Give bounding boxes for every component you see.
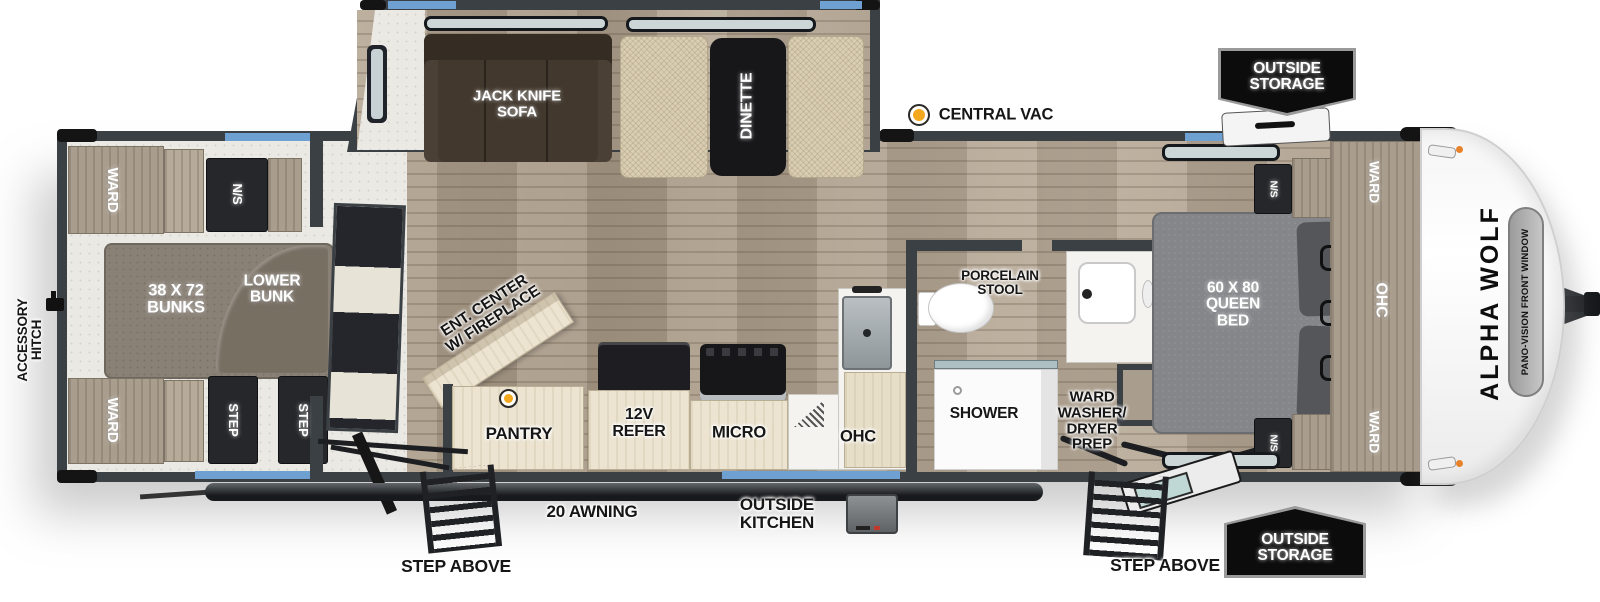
step-2-label: STEP <box>296 403 310 436</box>
sofa-window <box>424 16 608 31</box>
awning-roll <box>205 483 1043 501</box>
marker-light <box>1456 146 1463 153</box>
outside-kitchen-label: OUTSIDE KITCHEN <box>740 496 814 532</box>
ns-bed-bottom-label: N/S <box>1267 435 1278 452</box>
step-above-right-label: STEP ABOVE <box>1110 556 1220 574</box>
ward-bottom-label: WARD <box>104 397 120 442</box>
entry-steps-right <box>1083 471 1169 560</box>
ohc-kitchen-label: OHC <box>840 428 876 445</box>
outside-storage-badge-top: OUTSIDE STORAGE <box>1218 48 1356 116</box>
wall-trim <box>360 0 386 10</box>
central-vac-outlet-dot <box>499 389 518 408</box>
floorplan-canvas: WARD N/S 38 X 72 BUNKS LOWER BUNK WARD S… <box>0 0 1600 602</box>
outside-storage-badge-bottom: OUTSIDE STORAGE <box>1224 506 1366 578</box>
shower-label: SHOWER <box>950 406 1019 422</box>
dinette-bench-right <box>788 36 864 178</box>
faucet <box>852 286 882 293</box>
awning-bracket <box>140 490 210 500</box>
pantry-label: PANTRY <box>486 425 553 443</box>
lower-bunk-label: LOWER BUNK <box>244 274 301 307</box>
wardrobe-door <box>164 149 204 233</box>
awning-label: 20 AWNING <box>546 503 637 521</box>
cabinet-handle <box>1320 300 1331 326</box>
outside-storage-top-label: OUTSIDE STORAGE <box>1250 61 1325 94</box>
vanity-faucet-dot <box>1082 289 1092 299</box>
central-vac-label: CENTRAL VAC <box>939 106 1054 123</box>
accessory-hitch-pin <box>51 291 56 300</box>
bath-wall-top <box>906 240 1022 251</box>
bedside-cabinet-bottom <box>1292 414 1334 470</box>
refrigerator <box>598 342 690 394</box>
marker-light <box>1456 460 1463 467</box>
bunk-ladder <box>326 203 406 433</box>
outside-kitchen-box <box>846 494 898 534</box>
dinette-label: DINETTE <box>740 72 757 139</box>
stove-knobs <box>706 348 780 356</box>
hitch-coupler <box>1584 292 1600 316</box>
bath-wall-left <box>906 240 917 472</box>
window-strip <box>225 133 310 141</box>
shower-drain <box>953 386 962 395</box>
bunk-shelf <box>268 158 302 232</box>
jack-knife-sofa-label: JACK KNIFE SOFA <box>473 88 561 120</box>
dinette-window <box>626 17 816 32</box>
step-above-left-label: STEP ABOVE <box>401 557 511 575</box>
accessory-hitch-label: ACCESSORY HITCH <box>16 298 44 381</box>
ns-bunk-label: N/S <box>230 183 244 204</box>
cabinet-handle <box>1320 355 1331 381</box>
window-strip <box>722 471 900 479</box>
bedroom-ohc-label: OHC <box>1372 283 1389 318</box>
wall-trim <box>57 470 97 483</box>
outside-kitchen-light <box>874 526 880 530</box>
bedroom-window-top <box>1162 144 1280 161</box>
peninsula-cabinet <box>844 372 906 468</box>
step-1-label: STEP <box>226 403 240 436</box>
queen-bed-label: 60 X 80 QUEEN BED <box>1206 281 1260 330</box>
cabinet-handle <box>1320 245 1331 271</box>
kitchen-counter <box>788 394 842 470</box>
entry-steps-left <box>420 464 502 553</box>
ward-top-label: WARD <box>104 167 120 212</box>
central-vac-dot <box>908 104 930 126</box>
bunk-wall-top <box>310 141 323 227</box>
pano-vision-label: PANO-VISION FRONT WINDOW <box>1521 229 1531 376</box>
bedside-cabinet-top <box>1292 158 1334 218</box>
window-strip <box>195 471 310 479</box>
micro-label: MICRO <box>712 424 766 441</box>
ns-bed-top-label: N/S <box>1267 181 1278 198</box>
wardrobe-door <box>164 380 204 462</box>
refer-label: 12V REFER <box>612 407 665 441</box>
bunks-label: 38 X 72 BUNKS <box>147 283 205 318</box>
slideout-side-window <box>367 45 387 123</box>
bedroom-ward-bottom-label: WARD <box>1367 411 1382 453</box>
wall-trim <box>57 129 97 142</box>
dinette-bench-left <box>620 36 708 178</box>
outside-kitchen-latch <box>856 526 870 530</box>
outside-storage-bottom-label: OUTSIDE STORAGE <box>1258 532 1333 565</box>
sink-drain <box>863 329 871 337</box>
brand-logo: ALPHA WOLF <box>1477 205 1503 401</box>
shower-glass <box>934 360 1058 369</box>
bunk-wall-bottom <box>310 396 323 472</box>
window-strip <box>388 1 456 9</box>
bedroom-ward-top-label: WARD <box>1367 161 1382 203</box>
ward-washer-dryer-label: WARD WASHER/ DRYER PREP <box>1058 390 1127 453</box>
window-strip <box>820 1 862 9</box>
porcelain-stool-label: PORCELAIN STOOL <box>961 269 1039 297</box>
wall-trim <box>880 129 914 142</box>
